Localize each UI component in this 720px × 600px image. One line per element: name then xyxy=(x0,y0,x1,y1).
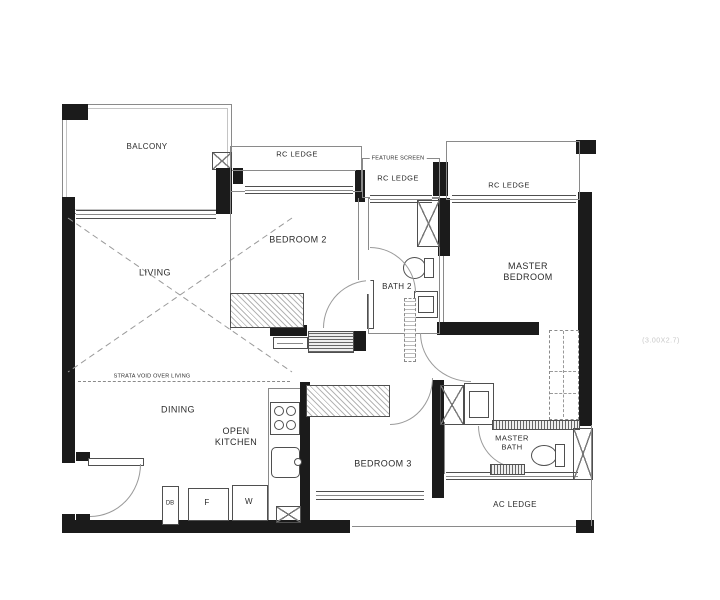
feature-screen-label: FEATURE SCREEN xyxy=(370,156,427,163)
window-icon xyxy=(452,195,576,203)
stove-burner xyxy=(286,406,296,416)
wall-right xyxy=(578,192,592,426)
sink-icon xyxy=(469,391,489,418)
master-bath-label: MASTER BATH xyxy=(495,434,529,453)
toilet-icon xyxy=(531,445,557,466)
master-bedroom-label: MASTER BEDROOM xyxy=(503,261,552,284)
strata-void-line xyxy=(78,381,290,382)
ac-ledge-right-line xyxy=(591,425,592,526)
hall-shelf-strip xyxy=(404,298,416,362)
ac-ledge-bottom-line xyxy=(352,526,576,527)
stove-burner xyxy=(274,406,284,416)
rc-ledge-left-label: RC LEDGE xyxy=(276,149,318,158)
rc-ledge-right-outline xyxy=(446,141,580,200)
master-bedroom-door-swing-icon xyxy=(420,333,471,382)
entrance-door-swing-icon xyxy=(90,464,141,517)
window-icon xyxy=(245,186,353,194)
wardrobe-shelf-line xyxy=(550,393,576,394)
bedroom2-label: BEDROOM 2 xyxy=(269,234,327,245)
sink-basin xyxy=(418,296,434,313)
dining-label: DINING xyxy=(161,404,195,415)
wardrobe-rail-line xyxy=(563,331,564,417)
stove-icon xyxy=(270,402,300,435)
balcony-inner-line xyxy=(66,108,228,210)
bedroom2-east-wall-line xyxy=(358,198,359,280)
toilet-tank xyxy=(424,258,434,278)
vent-icon xyxy=(276,506,301,523)
planter-strip xyxy=(308,331,354,353)
dimension-watermark: (3.00X2.7) xyxy=(642,338,680,347)
floorplan-canvas: BALCONY RC LEDGE FEATURE SCREEN RC LEDGE… xyxy=(0,0,720,600)
window-icon xyxy=(316,491,424,500)
strata-void-label: STRATA VOID OVER LIVING xyxy=(112,374,193,381)
shower-icon xyxy=(440,385,464,425)
wardrobe-icon xyxy=(306,385,390,417)
wall-corner-top-left xyxy=(62,104,88,120)
rc-ledge-right-label: RC LEDGE xyxy=(488,180,530,189)
bedroom3-door-swing-icon xyxy=(390,378,433,425)
bath2-label: BATH 2 xyxy=(382,282,412,292)
bedroom2-door-swing-icon xyxy=(323,280,371,328)
rc-ledge-center-label: RC LEDGE xyxy=(377,173,419,182)
washer-label: W xyxy=(245,497,253,507)
kitchen-counter-line-h xyxy=(268,388,300,389)
faucet-icon xyxy=(294,458,302,466)
kitchen-counter-line-v xyxy=(268,388,269,520)
master-west-wall-line xyxy=(443,256,444,322)
vent-strip xyxy=(490,464,525,475)
bedroom3-label: BEDROOM 3 xyxy=(354,458,412,469)
db-label: DB xyxy=(166,500,174,508)
wall-bottom xyxy=(62,520,350,533)
wall-entrance-hinge-bottom xyxy=(76,514,90,522)
toilet-tank xyxy=(555,444,565,467)
rc-ledge-left-inner-line xyxy=(232,170,356,171)
living-label: LIVING xyxy=(139,267,171,278)
wardrobe-icon xyxy=(549,330,579,420)
stove-burner xyxy=(286,420,296,430)
wardrobe-shelf-line xyxy=(550,371,576,372)
master-bath-west-line xyxy=(444,422,445,474)
shower-icon xyxy=(417,200,440,247)
wardrobe-icon xyxy=(230,293,304,328)
wall-planter-end xyxy=(352,331,366,351)
open-kitchen-label: OPEN KITCHEN xyxy=(215,426,257,449)
balcony-label: BALCONY xyxy=(126,142,167,152)
ac-unit-icon xyxy=(573,428,593,480)
bedroom2-ledge-box xyxy=(273,337,308,349)
stove-burner xyxy=(274,420,284,430)
fridge-label: F xyxy=(204,498,209,508)
ac-ledge-label: AC LEDGE xyxy=(493,500,537,510)
